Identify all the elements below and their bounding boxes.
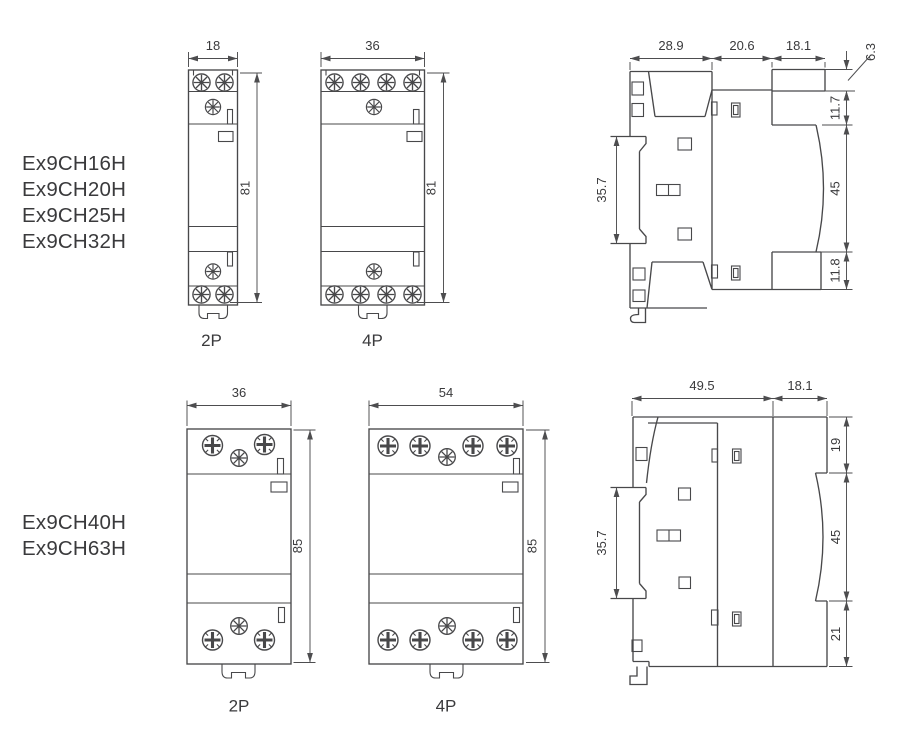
rear-slot xyxy=(632,104,644,117)
rear-slot xyxy=(633,290,645,302)
width-dimension-label: 18 xyxy=(206,38,220,53)
extension-lines xyxy=(632,401,827,416)
din-clip xyxy=(430,664,463,678)
indicator-window xyxy=(407,132,422,142)
model-label: Ex9CH16H xyxy=(22,152,126,175)
terminal-screw-icon xyxy=(410,630,430,650)
technical-drawing: Ex9CH16H Ex9CH20H Ex9CH25H Ex9CH32H 18 xyxy=(0,0,903,732)
din-clip xyxy=(631,308,646,323)
terminal-screw-icon xyxy=(193,286,210,303)
terminal-screw-icon xyxy=(404,74,421,91)
din-clip xyxy=(222,664,255,678)
terminal-screw-icon xyxy=(463,436,483,456)
terminal-screw-icon xyxy=(378,436,398,456)
indicator-window xyxy=(503,482,519,492)
body-top xyxy=(630,72,772,117)
height-dimension-label: 81 xyxy=(424,181,439,195)
coil-screw-icon xyxy=(439,449,456,466)
coil-screw-icon xyxy=(231,450,248,467)
front-profile xyxy=(772,70,825,290)
coil-screw-icon xyxy=(366,264,381,279)
terminal-screw-icon xyxy=(352,74,369,91)
height-dimension-label: 85 xyxy=(525,539,540,553)
terminal-screw-icon xyxy=(216,286,233,303)
module-lines xyxy=(718,417,774,667)
extension-lines xyxy=(630,62,825,70)
extension-lines xyxy=(187,401,291,427)
body-bottom xyxy=(630,90,821,308)
group-small-contactors: Ex9CH16H Ex9CH20H Ex9CH25H Ex9CH32H 18 xyxy=(22,38,878,350)
body-bottom xyxy=(633,662,827,667)
rear-slot xyxy=(632,82,644,95)
depth-dimension-label: 20.6 xyxy=(729,38,754,53)
housing-lines xyxy=(189,92,238,287)
side-details xyxy=(657,102,741,280)
coil-screw-icon xyxy=(231,618,248,635)
coil-screw-icon xyxy=(205,99,220,114)
pole-caption: 2P xyxy=(201,331,222,350)
height-dimension-label: 45 xyxy=(828,181,843,195)
coil-screw-icon xyxy=(205,264,220,279)
din-clip xyxy=(630,667,647,685)
terminal-screw-icon xyxy=(193,74,210,91)
height-dimension-label: 11.8 xyxy=(828,258,843,282)
housing-lines xyxy=(369,474,523,603)
terminal-screw-icon xyxy=(497,436,517,456)
side-view: 49.5 18.1 19 45 21 35.7 xyxy=(594,378,853,685)
body-top xyxy=(633,417,827,483)
pole-caption: 2P xyxy=(229,697,250,716)
terminal-tab xyxy=(278,459,284,475)
pole-caption: 4P xyxy=(362,331,383,350)
terminal-tab xyxy=(414,252,420,266)
terminal-tab xyxy=(414,110,420,125)
housing-lines xyxy=(187,474,291,603)
terminal-screw-icon xyxy=(255,630,275,650)
terminal-screw-icon xyxy=(352,286,369,303)
depth-dimension-label: 18.1 xyxy=(787,378,812,393)
terminal-tab xyxy=(228,252,233,266)
height-dimension-label: 81 xyxy=(238,181,253,195)
model-label: Ex9CH63H xyxy=(22,537,126,560)
width-dimension-label: 36 xyxy=(365,38,379,53)
rail-dimension-label: 35.7 xyxy=(594,530,609,555)
terminal-screw-icon xyxy=(378,74,395,91)
height-dimension-label: 19 xyxy=(828,438,843,452)
rear-slot xyxy=(636,448,647,461)
side-view: 28.9 20.6 18.1 6.3 11.7 45 11.8 35.7 xyxy=(594,38,878,323)
depth-dimension-label: 28.9 xyxy=(658,38,683,53)
terminal-screw-icon xyxy=(378,286,395,303)
terminal-screw-icon xyxy=(463,630,483,650)
terminal-screw-icon xyxy=(255,435,275,455)
front-view-4p: 54 85 4P xyxy=(369,385,550,716)
terminal-screw-icon xyxy=(203,630,223,650)
step-dimension-label: 6.3 xyxy=(863,43,878,61)
height-dimension-label: 21 xyxy=(828,627,843,641)
coil-screw-icon xyxy=(439,618,456,635)
model-label: Ex9CH32H xyxy=(22,230,126,253)
front-view-2p: 18 81 2P xyxy=(189,38,263,350)
model-list: Ex9CH40H Ex9CH63H xyxy=(22,511,126,560)
depth-dimension-label: 18.1 xyxy=(786,38,811,53)
din-rail-profile xyxy=(611,72,647,309)
device-outline xyxy=(369,429,523,664)
top-slots xyxy=(326,70,420,76)
terminal-tab xyxy=(279,608,285,623)
terminal-screw-icon xyxy=(404,286,421,303)
din-clip xyxy=(359,305,388,319)
datasheet-dimension-diagram: Ex9CH16H Ex9CH20H Ex9CH25H Ex9CH32H 18 xyxy=(0,0,903,732)
indicator-window xyxy=(219,132,234,142)
height-dimension-label: 11.7 xyxy=(828,96,843,120)
coil-screw-icon xyxy=(366,99,381,114)
din-rail-profile xyxy=(611,417,647,662)
front-profile xyxy=(816,417,828,667)
indicator-window xyxy=(271,482,287,492)
terminal-screw-icon xyxy=(410,436,430,456)
side-details xyxy=(657,449,741,626)
front-view-2p: 36 85 2P xyxy=(187,385,316,716)
terminal-screw-icon xyxy=(326,286,343,303)
width-dimension-label: 54 xyxy=(439,385,453,400)
terminal-screw-icon xyxy=(326,74,343,91)
rail-dimension-label: 35.7 xyxy=(594,177,609,202)
height-dimension-label: 45 xyxy=(828,530,843,544)
terminal-screw-icon xyxy=(203,436,223,456)
pole-caption: 4P xyxy=(436,697,457,716)
model-list: Ex9CH16H Ex9CH20H Ex9CH25H Ex9CH32H xyxy=(22,152,126,253)
rear-slot xyxy=(633,268,645,280)
group-large-contactors: Ex9CH40H Ex9CH63H 36 85 2P xyxy=(22,378,853,716)
model-label: Ex9CH40H xyxy=(22,511,126,534)
housing-lines xyxy=(321,92,425,287)
terminal-tab xyxy=(514,459,520,475)
extension-lines xyxy=(369,401,523,427)
model-label: Ex9CH20H xyxy=(22,178,126,201)
model-label: Ex9CH25H xyxy=(22,204,126,227)
terminal-tab xyxy=(228,110,233,125)
terminal-screw-icon xyxy=(378,630,398,650)
height-dimension-label: 85 xyxy=(290,539,305,553)
terminal-screw-icon xyxy=(497,630,517,650)
depth-dimension-label: 49.5 xyxy=(689,378,714,393)
front-view-4p: 36 81 4P xyxy=(321,38,450,350)
terminal-tab xyxy=(514,608,520,623)
extension-lines xyxy=(189,52,238,67)
width-dimension-label: 36 xyxy=(232,385,246,400)
din-clip xyxy=(199,305,228,319)
terminal-screw-icon xyxy=(216,74,233,91)
extension-lines xyxy=(321,52,425,67)
